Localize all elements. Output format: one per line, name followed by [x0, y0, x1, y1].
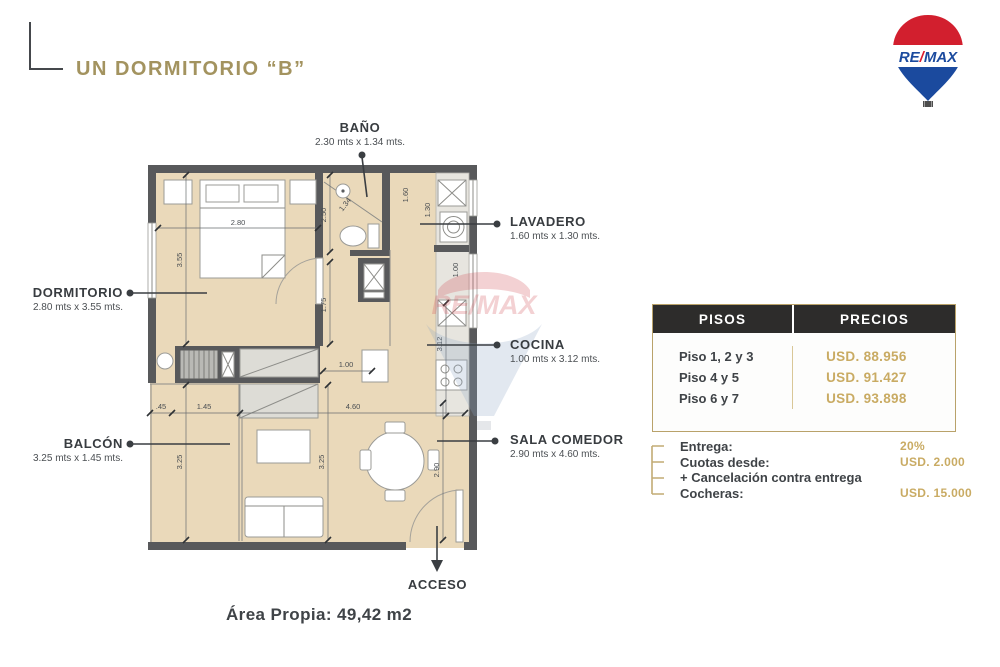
duct: [364, 264, 384, 298]
payment-bracket: [651, 442, 669, 502]
label-lavadero: LAVADERO 1.60 mts x 1.30 mts.: [510, 214, 600, 242]
label-bano: BAÑO 2.30 mts x 1.34 mts.: [280, 120, 440, 148]
header-pisos: PISOS: [653, 305, 792, 333]
svg-text:2.80: 2.80: [231, 218, 246, 227]
toilet-tank: [368, 224, 379, 248]
label-acceso: ACCESO: [395, 577, 480, 592]
pricing-table-header: PISOS PRECIOS: [653, 305, 955, 333]
svg-text:4.60: 4.60: [346, 402, 361, 411]
svg-text:1.30: 1.30: [423, 203, 432, 218]
title-bracket: [29, 22, 63, 70]
chair-bottom: [385, 490, 405, 501]
table-row: Piso 6 y 7 USD. 93.898: [653, 388, 955, 409]
svg-text:1.60: 1.60: [401, 188, 410, 203]
page-title: UN DORMITORIO “B”: [76, 58, 306, 81]
toilet-bowl: [340, 226, 366, 246]
payment-row: + Cancelación contra entrega: [680, 469, 956, 485]
chair-left: [360, 450, 371, 470]
price-cell: USD. 93.898: [792, 388, 955, 409]
balloon-red-band: [883, 12, 973, 45]
svg-text:3.55: 3.55: [175, 253, 184, 268]
price-cell: USD. 91.427: [792, 367, 955, 388]
floor-cell: Piso 1, 2 y 3: [653, 349, 792, 364]
svg-text:3.25: 3.25: [317, 455, 326, 470]
svg-text:.45: .45: [156, 402, 166, 411]
coffee-table: [257, 430, 310, 463]
bedroom-door-leaf: [316, 258, 323, 304]
header-precios: PRECIOS: [792, 305, 955, 333]
payment-row: Cuotas desde: USD. 2.000: [680, 454, 956, 470]
flyer-page: UN DORMITORIO “B” RE/MAX: [0, 0, 1000, 667]
svg-text:2.90: 2.90: [432, 463, 441, 478]
logo-wordmark: RE/MAX: [899, 49, 958, 66]
planter: [157, 353, 173, 369]
fridge: [362, 350, 388, 382]
nightstand-left: [164, 180, 192, 204]
price-cell: USD. 88.956: [792, 346, 955, 367]
entrance-door-leaf: [456, 490, 463, 542]
svg-text:RE/MAX: RE/MAX: [431, 290, 538, 320]
nightstand-right: [290, 180, 316, 204]
dining-table: [366, 432, 424, 490]
chair-top: [385, 422, 405, 433]
floor-cell: Piso 6 y 7: [653, 391, 792, 406]
svg-text:2.50: 2.50: [319, 208, 328, 223]
acceso-arrowhead: [431, 560, 443, 572]
pillow-left: [206, 185, 239, 202]
table-row: Piso 1, 2 y 3 USD. 88.956: [653, 346, 955, 367]
table-row: Piso 4 y 5 USD. 91.427: [653, 367, 955, 388]
pricing-table: PISOS PRECIOS Piso 1, 2 y 3 USD. 88.956 …: [652, 304, 956, 432]
payment-row: Entrega: 20%: [680, 438, 956, 454]
svg-text:3.25: 3.25: [175, 455, 184, 470]
floor-cell: Piso 4 y 5: [653, 370, 792, 385]
area-propia-label: Área Propia: 49,42 m2: [226, 605, 412, 625]
payment-row: Cocheras: USD. 15.000: [680, 485, 956, 501]
remax-balloon-logo: RE/MAX: [883, 12, 973, 112]
svg-text:1.75: 1.75: [319, 298, 328, 313]
svg-text:1.00: 1.00: [339, 360, 354, 369]
label-cocina: COCINA 1.00 mts x 3.12 mts.: [510, 337, 600, 365]
label-balcon: BALCÓN 3.25 mts x 1.45 mts.: [3, 436, 123, 464]
pillow-right: [244, 185, 278, 202]
payment-terms: Entrega: 20% Cuotas desde: USD. 2.000 + …: [652, 438, 956, 500]
label-dormitorio: DORMITORIO 2.80 mts x 3.55 mts.: [3, 285, 123, 313]
label-sala-comedor: SALA COMEDOR 2.90 mts x 4.60 mts.: [510, 432, 624, 460]
svg-text:1.45: 1.45: [197, 402, 212, 411]
